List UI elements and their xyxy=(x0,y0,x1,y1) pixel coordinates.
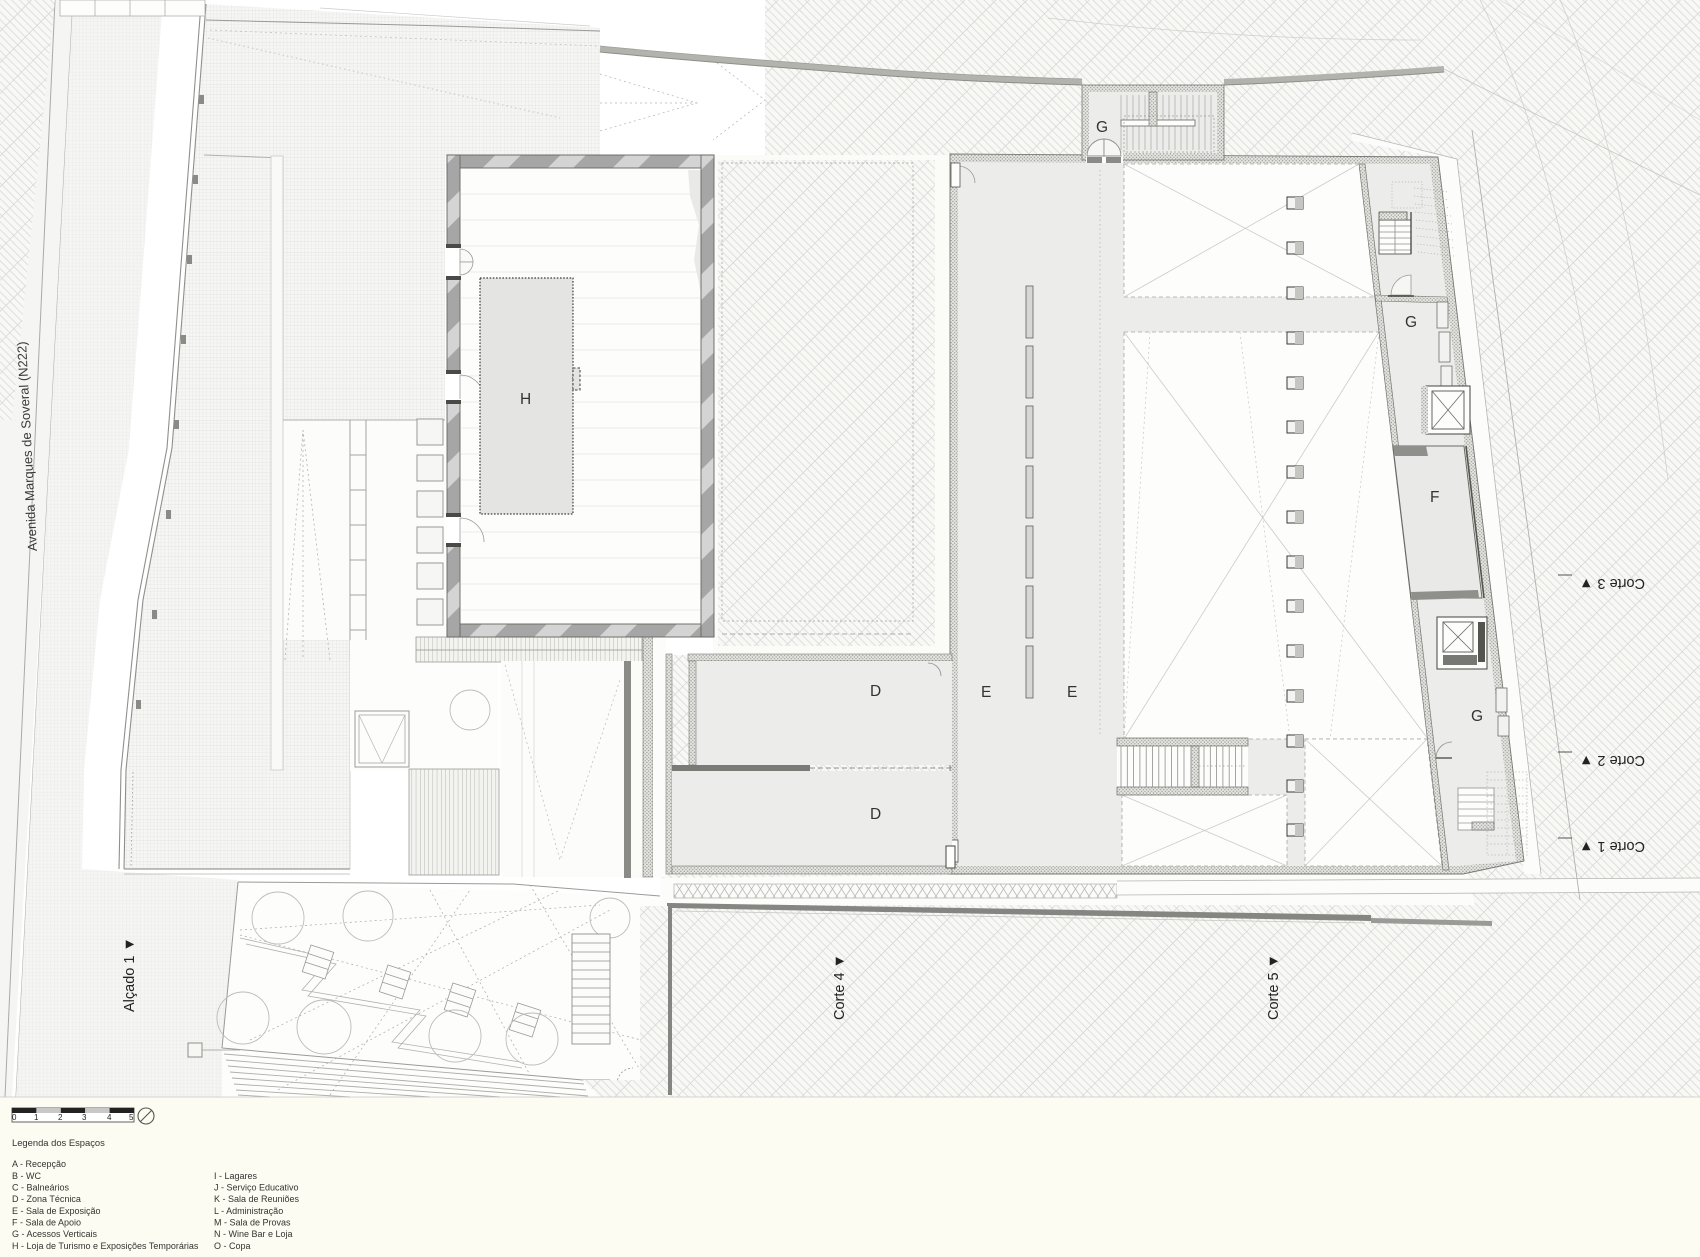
svg-text:Corte 4 ▼: Corte 4 ▼ xyxy=(832,954,848,1020)
svg-text:Legenda dos Espaços: Legenda dos Espaços xyxy=(12,1137,105,1148)
svg-text:Corte 1 ▼: Corte 1 ▼ xyxy=(1579,838,1645,854)
svg-text:Alçado 1 ▼: Alçado 1 ▼ xyxy=(122,937,138,1012)
svg-text:N - Wine Bar e Loja: N - Wine Bar e Loja xyxy=(214,1229,293,1239)
svg-text:5: 5 xyxy=(129,1113,134,1122)
svg-text:I - Lagares: I - Lagares xyxy=(214,1171,258,1181)
svg-text:F - Sala de Apoio: F - Sala de Apoio xyxy=(12,1218,81,1228)
svg-text:E: E xyxy=(981,684,991,701)
svg-text:F: F xyxy=(1430,489,1439,506)
svg-text:M - Sala de Provas: M - Sala de Provas xyxy=(214,1218,291,1228)
svg-text:D - Zona Técnica: D - Zona Técnica xyxy=(12,1194,81,1204)
svg-text:0: 0 xyxy=(12,1113,17,1122)
svg-text:Corte 3 ▼: Corte 3 ▼ xyxy=(1579,575,1645,591)
svg-text:O - Copa: O - Copa xyxy=(214,1241,251,1251)
svg-text:2: 2 xyxy=(58,1113,63,1122)
svg-text:B - WC: B - WC xyxy=(12,1171,41,1181)
svg-text:G - Acessos Verticais: G - Acessos Verticais xyxy=(12,1229,98,1239)
svg-text:K - Sala de Reuniões: K - Sala de Reuniões xyxy=(214,1194,300,1204)
svg-text:E - Sala de Exposição: E - Sala de Exposição xyxy=(12,1206,101,1216)
svg-text:Corte 5 ▼: Corte 5 ▼ xyxy=(1266,954,1282,1020)
svg-text:Corte 2 ▼: Corte 2 ▼ xyxy=(1579,752,1645,768)
svg-text:1: 1 xyxy=(34,1113,39,1122)
svg-text:3: 3 xyxy=(82,1113,87,1122)
svg-text:G: G xyxy=(1405,314,1417,331)
svg-text:H - Loja de Turismo e Exposiçõ: H - Loja de Turismo e Exposições Temporá… xyxy=(12,1241,199,1251)
svg-text:L - Administração: L - Administração xyxy=(214,1206,283,1216)
svg-text:4: 4 xyxy=(107,1113,112,1122)
svg-text:G: G xyxy=(1096,119,1108,136)
svg-text:D: D xyxy=(870,806,881,823)
svg-text:H: H xyxy=(520,391,531,408)
svg-text:A - Recepção: A - Recepção xyxy=(12,1159,66,1169)
svg-text:D: D xyxy=(870,683,881,700)
svg-text:C - Balneários: C - Balneários xyxy=(12,1183,70,1193)
svg-text:E: E xyxy=(1067,684,1077,701)
svg-text:J - Serviço Educativo: J - Serviço Educativo xyxy=(214,1183,299,1193)
svg-text:G: G xyxy=(1471,708,1483,725)
